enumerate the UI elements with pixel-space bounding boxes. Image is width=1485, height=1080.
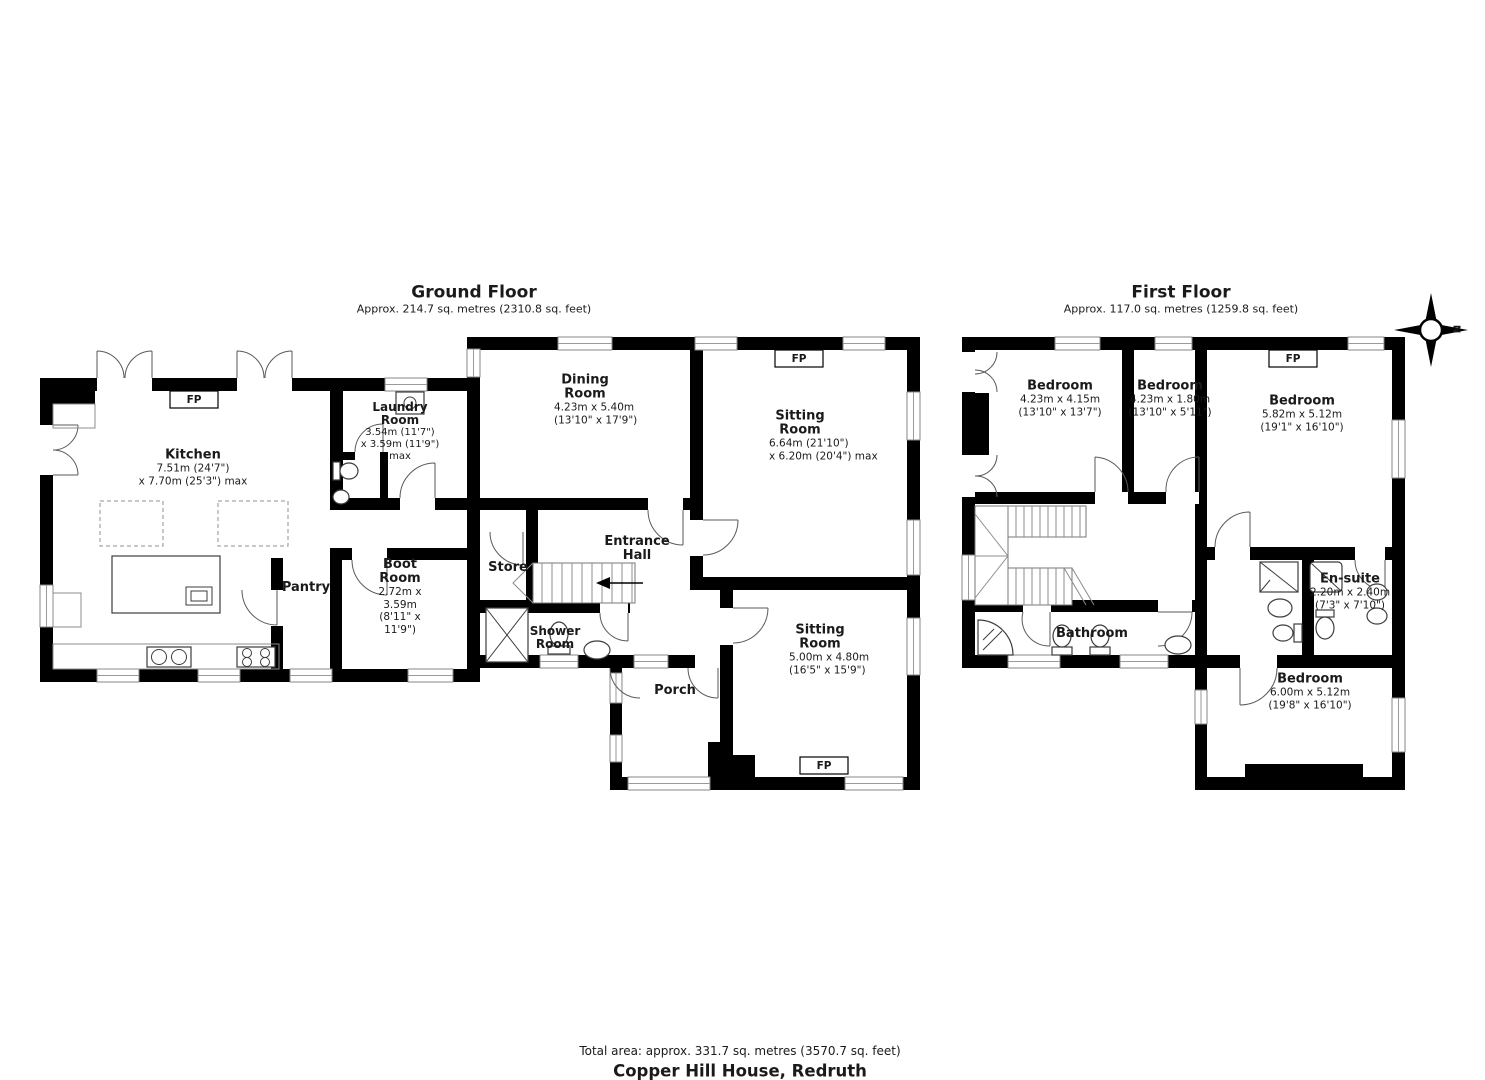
label-pantry: Pantry [282, 581, 330, 595]
label-boot-room: Boot Room 2.72m x 3.59m (8'11" x 11'9") [365, 558, 435, 636]
label-laundry-room: Laundry Room 3.54m (11'7") x 3.59m (11'9… [356, 401, 444, 463]
first-floor-subtitle: Approx. 117.0 sq. metres (1259.8 sq. fee… [1064, 303, 1298, 317]
fireplace-label-sitting-room-1: FP [792, 353, 807, 365]
ground-floor-stairs [513, 563, 643, 603]
fireplace-label-bedroom-3: FP [1286, 353, 1301, 365]
ground-floor-header: Ground Floor Approx. 214.7 sq. metres (2… [357, 283, 591, 318]
first-floor-header: First Floor Approx. 117.0 sq. metres (12… [1064, 283, 1298, 318]
label-entrance-hall: Entrance Hall [596, 535, 678, 563]
label-en-suite: En-suite 2.20m x 2.40m (7'3" x 7'10") [1310, 572, 1390, 611]
fireplace-label-sitting-room-2: FP [817, 760, 832, 772]
label-bathroom: Bathroom [1056, 627, 1128, 641]
first-floor-title: First Floor [1064, 283, 1298, 303]
fireplace-label-kitchen: FP [187, 394, 202, 406]
label-store: Store [488, 561, 528, 575]
label-bedroom-1: Bedroom 4.23m x 4.15m (13'10" x 13'7") [1018, 379, 1101, 418]
ground-floor-subtitle: Approx. 214.7 sq. metres (2310.8 sq. fee… [357, 303, 591, 317]
label-bedroom-4: Bedroom 6.00m x 5.12m (19'8" x 16'10") [1268, 672, 1351, 711]
first-floor-stairs [975, 506, 1094, 605]
label-sitting-room-1: Sitting Room 6.64m (21'10") x 6.20m (20'… [769, 409, 831, 462]
ground-floor-title: Ground Floor [357, 283, 591, 303]
label-bedroom-3: Bedroom 5.82m x 5.12m (19'1" x 16'10") [1260, 394, 1343, 433]
floorplan-canvas: Ground Floor Approx. 214.7 sq. metres (2… [0, 0, 1485, 1080]
label-shower-room: Shower Room [525, 625, 585, 651]
footer-total-area: Total area: approx. 331.7 sq. metres (35… [579, 1044, 900, 1058]
label-kitchen: Kitchen 7.51m (24'7") x 7.70m (25'3") ma… [139, 448, 248, 487]
footer-property-title: Copper Hill House, Redruth [613, 1063, 867, 1080]
compass-north-label: N [1451, 325, 1462, 333]
label-porch: Porch [654, 684, 696, 698]
label-sitting-room-2: Sitting Room 5.00m x 4.80m (16'5" x 15'9… [789, 623, 851, 676]
floorplan-drawing [0, 0, 1485, 1080]
label-dining-room: Dining Room 4.23m x 5.40m (13'10" x 17'9… [554, 373, 616, 426]
label-bedroom-2: Bedroom 4.23m x 1.80m (13'10" x 5'11") [1128, 379, 1211, 418]
